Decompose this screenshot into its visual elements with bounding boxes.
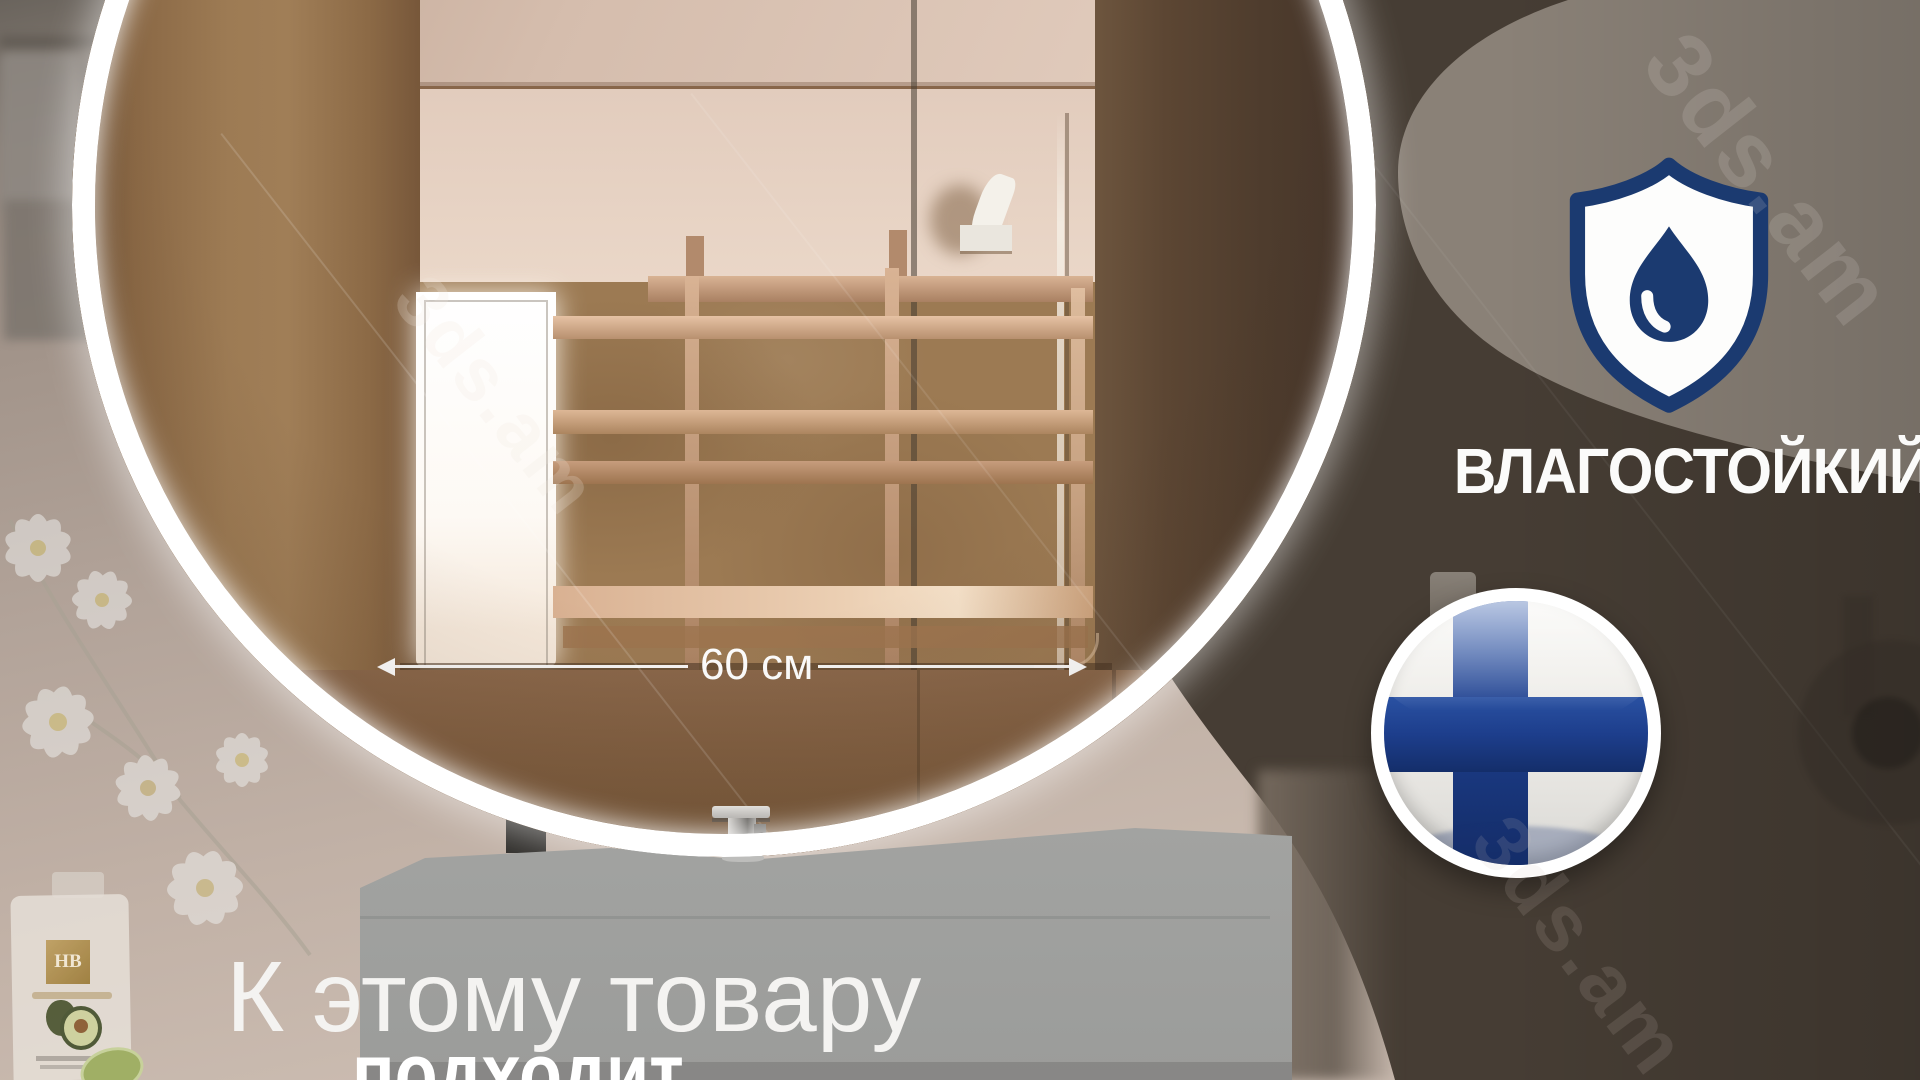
product-banner: 3ds.am 60 см HB [0, 0, 1920, 1080]
cosmetic-bottle: HB [0, 860, 220, 1080]
flag-bottom-reflection [1410, 826, 1622, 865]
brand-logo-text: HB [54, 951, 81, 973]
flag-gloss-highlight [1384, 601, 1648, 733]
finland-flag-icon [1371, 588, 1661, 878]
mirror-circle: 3ds.am [72, 0, 1376, 857]
toilet-paper-holder-silhouette [1780, 580, 1920, 880]
moisture-resistant-label: ВЛАГОСТОЙКИЙ [1454, 434, 1886, 508]
avocado-graphic [46, 1000, 106, 1048]
vanity-door-seam [360, 916, 1270, 919]
brand-logo-square: HB [46, 940, 90, 984]
label-text-line [32, 992, 112, 999]
paper-roll-hole [1852, 697, 1920, 769]
shield-water-drop-icon [1560, 152, 1778, 414]
finland-flag-face [1384, 601, 1648, 865]
caption-line-2: подходит [352, 1025, 684, 1080]
avocado-pit [74, 1019, 88, 1033]
